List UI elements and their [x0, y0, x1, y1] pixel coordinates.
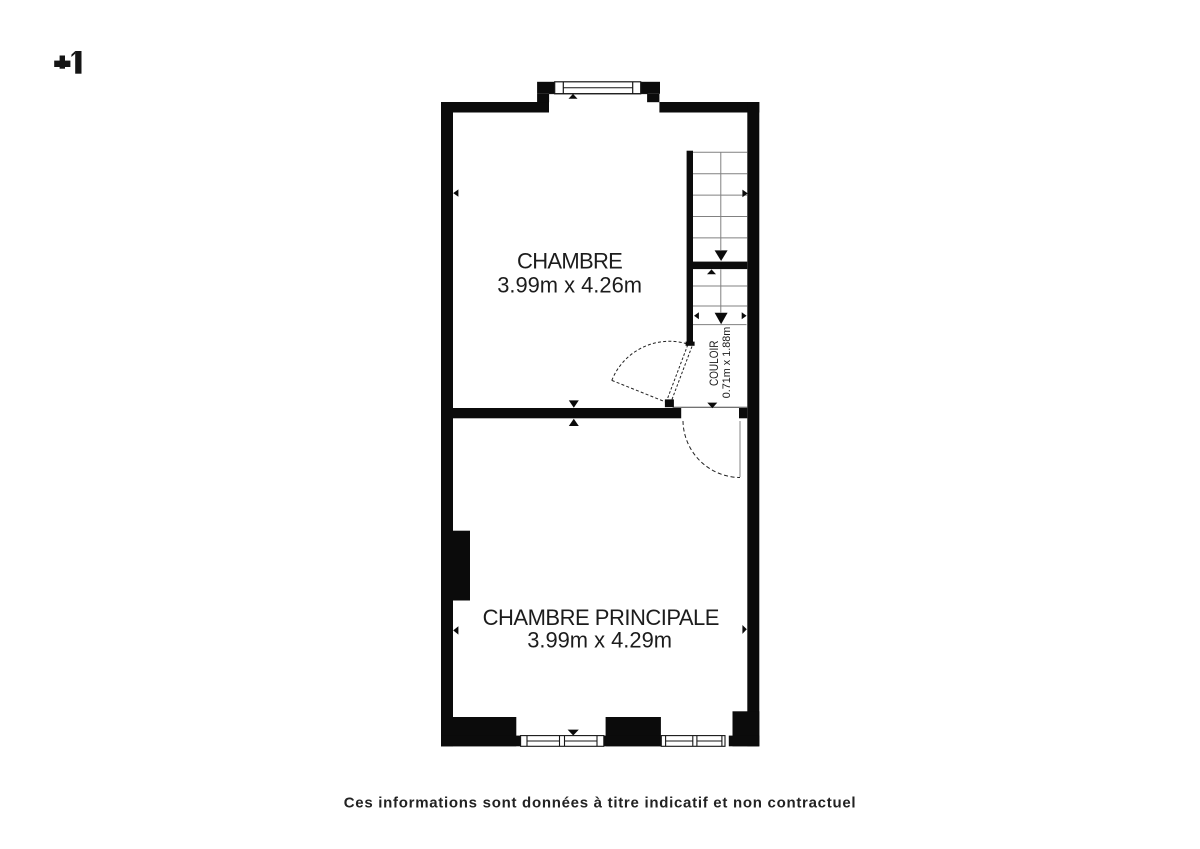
- svg-text:COULOIR: COULOIR: [708, 341, 721, 387]
- svg-text:3.99m x 4.29m: 3.99m x 4.29m: [527, 628, 672, 653]
- svg-text:Ces informations sont données: Ces informations sont données à titre in…: [344, 795, 857, 812]
- svg-text:3.99m x 4.26m: 3.99m x 4.26m: [497, 273, 642, 298]
- svg-text:0.71m x 1.88m: 0.71m x 1.88m: [721, 327, 733, 398]
- svg-text:CHAMBRE: CHAMBRE: [517, 248, 622, 273]
- svg-text:CHAMBRE PRINCIPALE: CHAMBRE PRINCIPALE: [483, 605, 719, 630]
